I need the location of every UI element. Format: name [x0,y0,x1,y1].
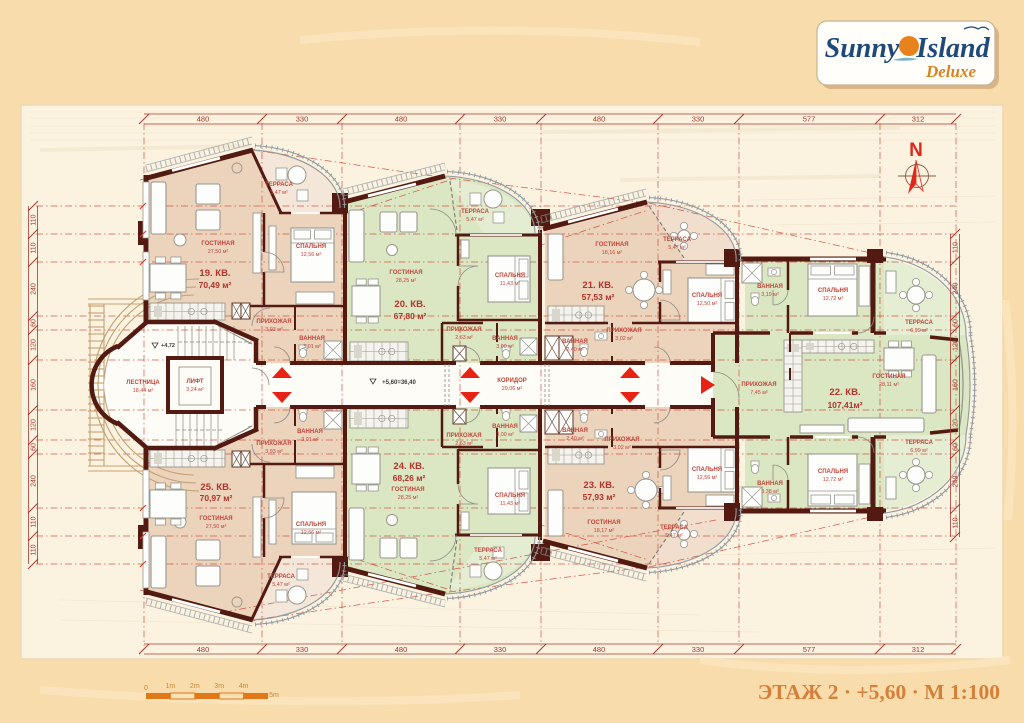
svg-text:ВАННАЯ: ВАННАЯ [757,481,783,487]
svg-text:КОРИДОР: КОРИДОР [497,378,527,384]
svg-text:11,43 м²: 11,43 м² [500,501,520,507]
svg-text:2,40 м²: 2,40 м² [566,436,584,442]
svg-text:ТЕРРАСА: ТЕРРАСА [474,548,503,554]
svg-text:СПАЛЬНЯ: СПАЛЬНЯ [495,493,525,499]
svg-text:24. КВ.: 24. КВ. [393,461,424,472]
svg-text:27,50 м²: 27,50 м² [206,524,227,530]
svg-text:60: 60 [953,443,960,451]
svg-text:5m: 5m [269,692,279,699]
svg-text:ПРИХОЖАЯ: ПРИХОЖАЯ [604,437,639,443]
svg-text:СПАЛЬНЯ: СПАЛЬНЯ [818,288,848,294]
svg-text:12,56 м²: 12,56 м² [697,475,718,481]
svg-text:312: 312 [912,645,925,654]
svg-text:ТЕРРАСА: ТЕРРАСА [267,574,296,580]
svg-text:25. КВ.: 25. КВ. [200,482,231,493]
svg-text:5,47 м²: 5,47 м² [466,217,484,223]
svg-text:240: 240 [31,283,38,295]
svg-text:ВАННАЯ: ВАННАЯ [492,424,518,430]
svg-text:ВАННАЯ: ВАННАЯ [492,336,518,342]
svg-text:27,50 м²: 27,50 м² [208,249,229,255]
svg-text:28,25 м²: 28,25 м² [396,278,417,284]
svg-text:60: 60 [31,443,38,451]
svg-text:480: 480 [593,645,606,654]
svg-text:67,80 м²: 67,80 м² [394,311,427,321]
svg-text:4m: 4m [239,683,249,690]
svg-text:12,72 м²: 12,72 м² [823,477,844,483]
svg-text:6,99 м²: 6,99 м² [910,448,928,454]
svg-text:ПРИХОЖАЯ: ПРИХОЖАЯ [256,441,291,447]
svg-text:3,19 м²: 3,19 м² [761,292,779,298]
svg-text:480: 480 [197,645,210,654]
svg-text:240: 240 [31,475,38,487]
svg-text:110: 110 [31,214,38,225]
svg-text:5,47 м²: 5,47 м² [270,190,288,196]
svg-text:330: 330 [296,115,309,124]
svg-text:330: 330 [494,645,507,654]
svg-text:28,11 м²: 28,11 м² [879,382,899,388]
svg-text:7,45 м²: 7,45 м² [750,390,768,396]
svg-text:330: 330 [494,115,507,124]
svg-text:120: 120 [953,419,960,431]
svg-text:312: 312 [912,115,925,124]
svg-text:5,47 м²: 5,47 м² [272,582,290,588]
svg-text:70,97 м²: 70,97 м² [200,493,233,503]
svg-text:240: 240 [953,283,960,295]
svg-text:ПРИХОЖАЯ: ПРИХОЖАЯ [256,319,291,325]
svg-text:28,25 м²: 28,25 м² [398,495,419,501]
svg-text:60: 60 [31,319,38,327]
svg-text:ЛЕСТНИЦА: ЛЕСТНИЦА [126,380,160,386]
svg-text:110: 110 [953,242,960,253]
svg-text:160: 160 [31,379,38,391]
svg-text:2m: 2m [190,683,200,690]
svg-text:22. КВ.: 22. КВ. [829,387,860,398]
svg-text:1m: 1m [166,683,176,690]
svg-text:ТЕРРАСА: ТЕРРАСА [905,320,934,326]
svg-text:12,50 м²: 12,50 м² [697,301,718,307]
svg-text:ТЕРРАСА: ТЕРРАСА [461,209,490,215]
svg-text:330: 330 [692,115,705,124]
svg-text:23. КВ.: 23. КВ. [583,480,614,491]
svg-text:ТЕРРАСА: ТЕРРАСА [663,237,692,243]
svg-text:120: 120 [953,339,960,351]
svg-text:107,41м²: 107,41м² [827,400,862,410]
svg-text:5,47 м²: 5,47 м² [668,245,686,251]
svg-text:11,43 м²: 11,43 м² [500,281,520,287]
svg-text:160: 160 [953,379,960,391]
svg-text:3,24 м²: 3,24 м² [186,387,204,393]
svg-text:29,06 м²: 29,06 м² [502,386,523,392]
svg-text:12,56 м²: 12,56 м² [301,252,322,258]
svg-text:СПАЛЬНЯ: СПАЛЬНЯ [692,467,722,473]
svg-text:ГОСТИНАЯ: ГОСТИНАЯ [872,374,905,380]
svg-text:2,63 м²: 2,63 м² [455,335,473,341]
svg-text:СПАЛЬНЯ: СПАЛЬНЯ [296,522,326,528]
svg-text:57,93 м²: 57,93 м² [583,492,616,502]
svg-text:ГОСТИНАЯ: ГОСТИНАЯ [199,516,232,522]
svg-text:3,02 м²: 3,02 м² [613,445,631,451]
svg-text:СПАЛЬНЯ: СПАЛЬНЯ [296,244,326,250]
svg-text:ГОСТИНАЯ: ГОСТИНАЯ [389,270,422,276]
svg-text:ГОСТИНАЯ: ГОСТИНАЯ [587,520,620,526]
svg-text:577: 577 [803,115,816,124]
svg-text:12,56 м²: 12,56 м² [301,530,322,536]
svg-text:Deluxe: Deluxe [925,62,977,81]
svg-text:240: 240 [953,476,960,488]
svg-text:70,49 м²: 70,49 м² [199,280,232,290]
svg-text:ГОСТИНАЯ: ГОСТИНАЯ [391,487,424,493]
svg-text:ЛИФТ: ЛИФТ [186,379,203,385]
svg-text:3,00 м²: 3,00 м² [496,432,514,438]
svg-text:12,72 м²: 12,72 м² [823,296,844,302]
svg-text:N: N [909,140,923,161]
svg-text:ПРИХОЖАЯ: ПРИХОЖАЯ [446,433,481,439]
svg-text:3,38 м²: 3,38 м² [761,489,779,495]
svg-text:СПАЛЬНЯ: СПАЛЬНЯ [692,293,722,299]
svg-text:330: 330 [296,645,309,654]
svg-text:+5,60=36,40: +5,60=36,40 [382,380,416,386]
svg-text:18,44 м²: 18,44 м² [133,388,154,394]
svg-text:19. КВ.: 19. КВ. [199,268,230,279]
svg-text:2,40 м²: 2,40 м² [566,347,584,353]
svg-text:3,02 м²: 3,02 м² [615,336,633,342]
svg-text:3,01 м²: 3,01 м² [301,437,319,443]
svg-text:6,99 м²: 6,99 м² [910,328,928,334]
svg-text:110: 110 [31,516,38,527]
svg-text:3m: 3m [214,683,224,690]
svg-text:21. КВ.: 21. КВ. [582,280,613,291]
svg-text:ПРИХОЖАЯ: ПРИХОЖАЯ [446,327,481,333]
svg-text:480: 480 [395,645,408,654]
svg-text:ПРИХОЖАЯ: ПРИХОЖАЯ [606,328,641,334]
svg-text:ТЕРРАСА: ТЕРРАСА [660,525,689,531]
svg-text:ТЕРРАСА: ТЕРРАСА [265,182,294,188]
svg-text:3,00 м²: 3,00 м² [496,344,514,350]
svg-text:ЭТАЖ 2 · +5,60 · М 1:100: ЭТАЖ 2 · +5,60 · М 1:100 [758,680,1000,704]
svg-text:СПАЛЬНЯ: СПАЛЬНЯ [495,273,525,279]
svg-text:СПАЛЬНЯ: СПАЛЬНЯ [818,469,848,475]
svg-text:120: 120 [31,339,38,351]
svg-text:ВАННАЯ: ВАННАЯ [757,284,783,290]
svg-text:ТЕРРАСА: ТЕРРАСА [905,440,934,446]
svg-text:ВАННАЯ: ВАННАЯ [562,428,588,434]
svg-text:+4,72: +4,72 [161,343,175,349]
svg-text:ГОСТИНАЯ: ГОСТИНАЯ [595,242,628,248]
svg-text:3,93 м²: 3,93 м² [265,449,283,455]
svg-text:3,01 м²: 3,01 м² [303,344,321,350]
svg-text:577: 577 [803,645,816,654]
svg-text:480: 480 [593,115,606,124]
svg-text:110: 110 [31,544,38,555]
svg-text:ВАННАЯ: ВАННАЯ [297,429,323,435]
svg-text:110: 110 [953,517,960,528]
svg-text:ВАННАЯ: ВАННАЯ [299,336,325,342]
svg-text:5,47 м²: 5,47 м² [479,556,497,562]
svg-text:20. КВ.: 20. КВ. [394,299,425,310]
svg-text:3,93 м²: 3,93 м² [265,327,283,333]
svg-text:330: 330 [692,645,705,654]
svg-text:2,63 м²: 2,63 м² [455,441,473,447]
svg-text:ПРИХОЖАЯ: ПРИХОЖАЯ [741,382,776,388]
svg-text:480: 480 [197,115,210,124]
svg-text:60: 60 [953,319,960,327]
svg-text:68,26 м²: 68,26 м² [393,473,426,483]
svg-text:Sunny: Sunny [825,33,900,64]
svg-text:110: 110 [31,242,38,253]
svg-text:57,53 м²: 57,53 м² [582,292,615,302]
svg-text:18,17 м²: 18,17 м² [594,528,615,534]
svg-text:5,47 м²: 5,47 м² [665,533,683,539]
svg-text:ВАННАЯ: ВАННАЯ [562,339,588,345]
svg-text:480: 480 [395,115,408,124]
svg-text:120: 120 [31,419,38,431]
svg-text:Island: Island [915,33,990,64]
svg-text:18,16 м²: 18,16 м² [602,250,623,256]
svg-text:ГОСТИНАЯ: ГОСТИНАЯ [201,241,234,247]
svg-text:0: 0 [144,685,148,692]
